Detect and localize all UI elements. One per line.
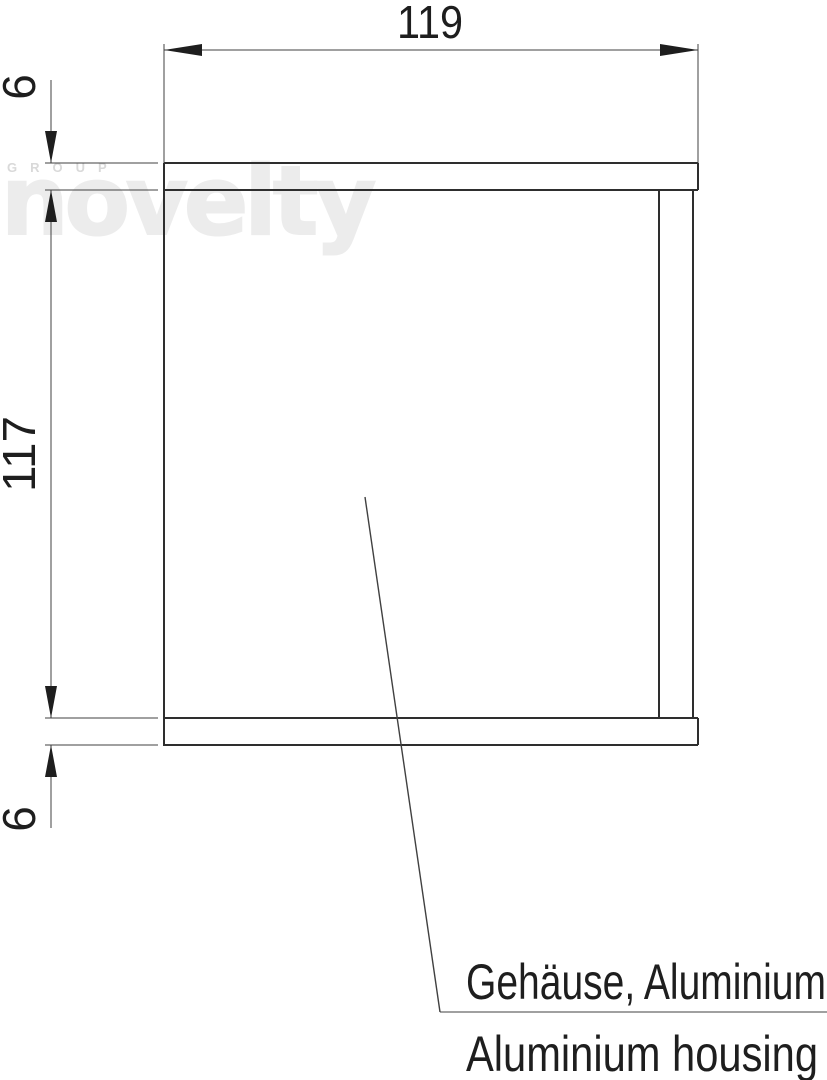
dimension-value-bottom-thickness: 6	[0, 806, 45, 832]
part-label-callout: Gehäuse, Aluminium Aluminium housing	[365, 497, 827, 1080]
dimension-value-width: 119	[397, 0, 463, 48]
arrowhead-left-icon	[164, 44, 202, 56]
dimension-width: 119	[164, 0, 698, 163]
dimension-left-stack: 6 117 6	[0, 74, 158, 832]
dimension-value-inner-height: 117	[0, 416, 45, 492]
leader-line	[365, 497, 440, 1012]
housing-outline	[164, 163, 698, 746]
part-name-english: Aluminium housing	[466, 1026, 818, 1080]
arrowhead-up-height-icon	[45, 190, 57, 222]
arrowhead-right-icon	[660, 44, 698, 56]
arrowhead-down-height-icon	[45, 686, 57, 718]
section-drawing: 119 6 117 6	[0, 0, 827, 1080]
arrowhead-up-bottom6-icon	[45, 745, 57, 777]
arrowhead-down-top6-icon	[45, 131, 57, 163]
dimension-value-top-thickness: 6	[0, 74, 45, 100]
part-name-german: Gehäuse, Aluminium	[466, 954, 826, 1010]
drawing-sheet: GROUP novelty	[0, 0, 827, 1080]
